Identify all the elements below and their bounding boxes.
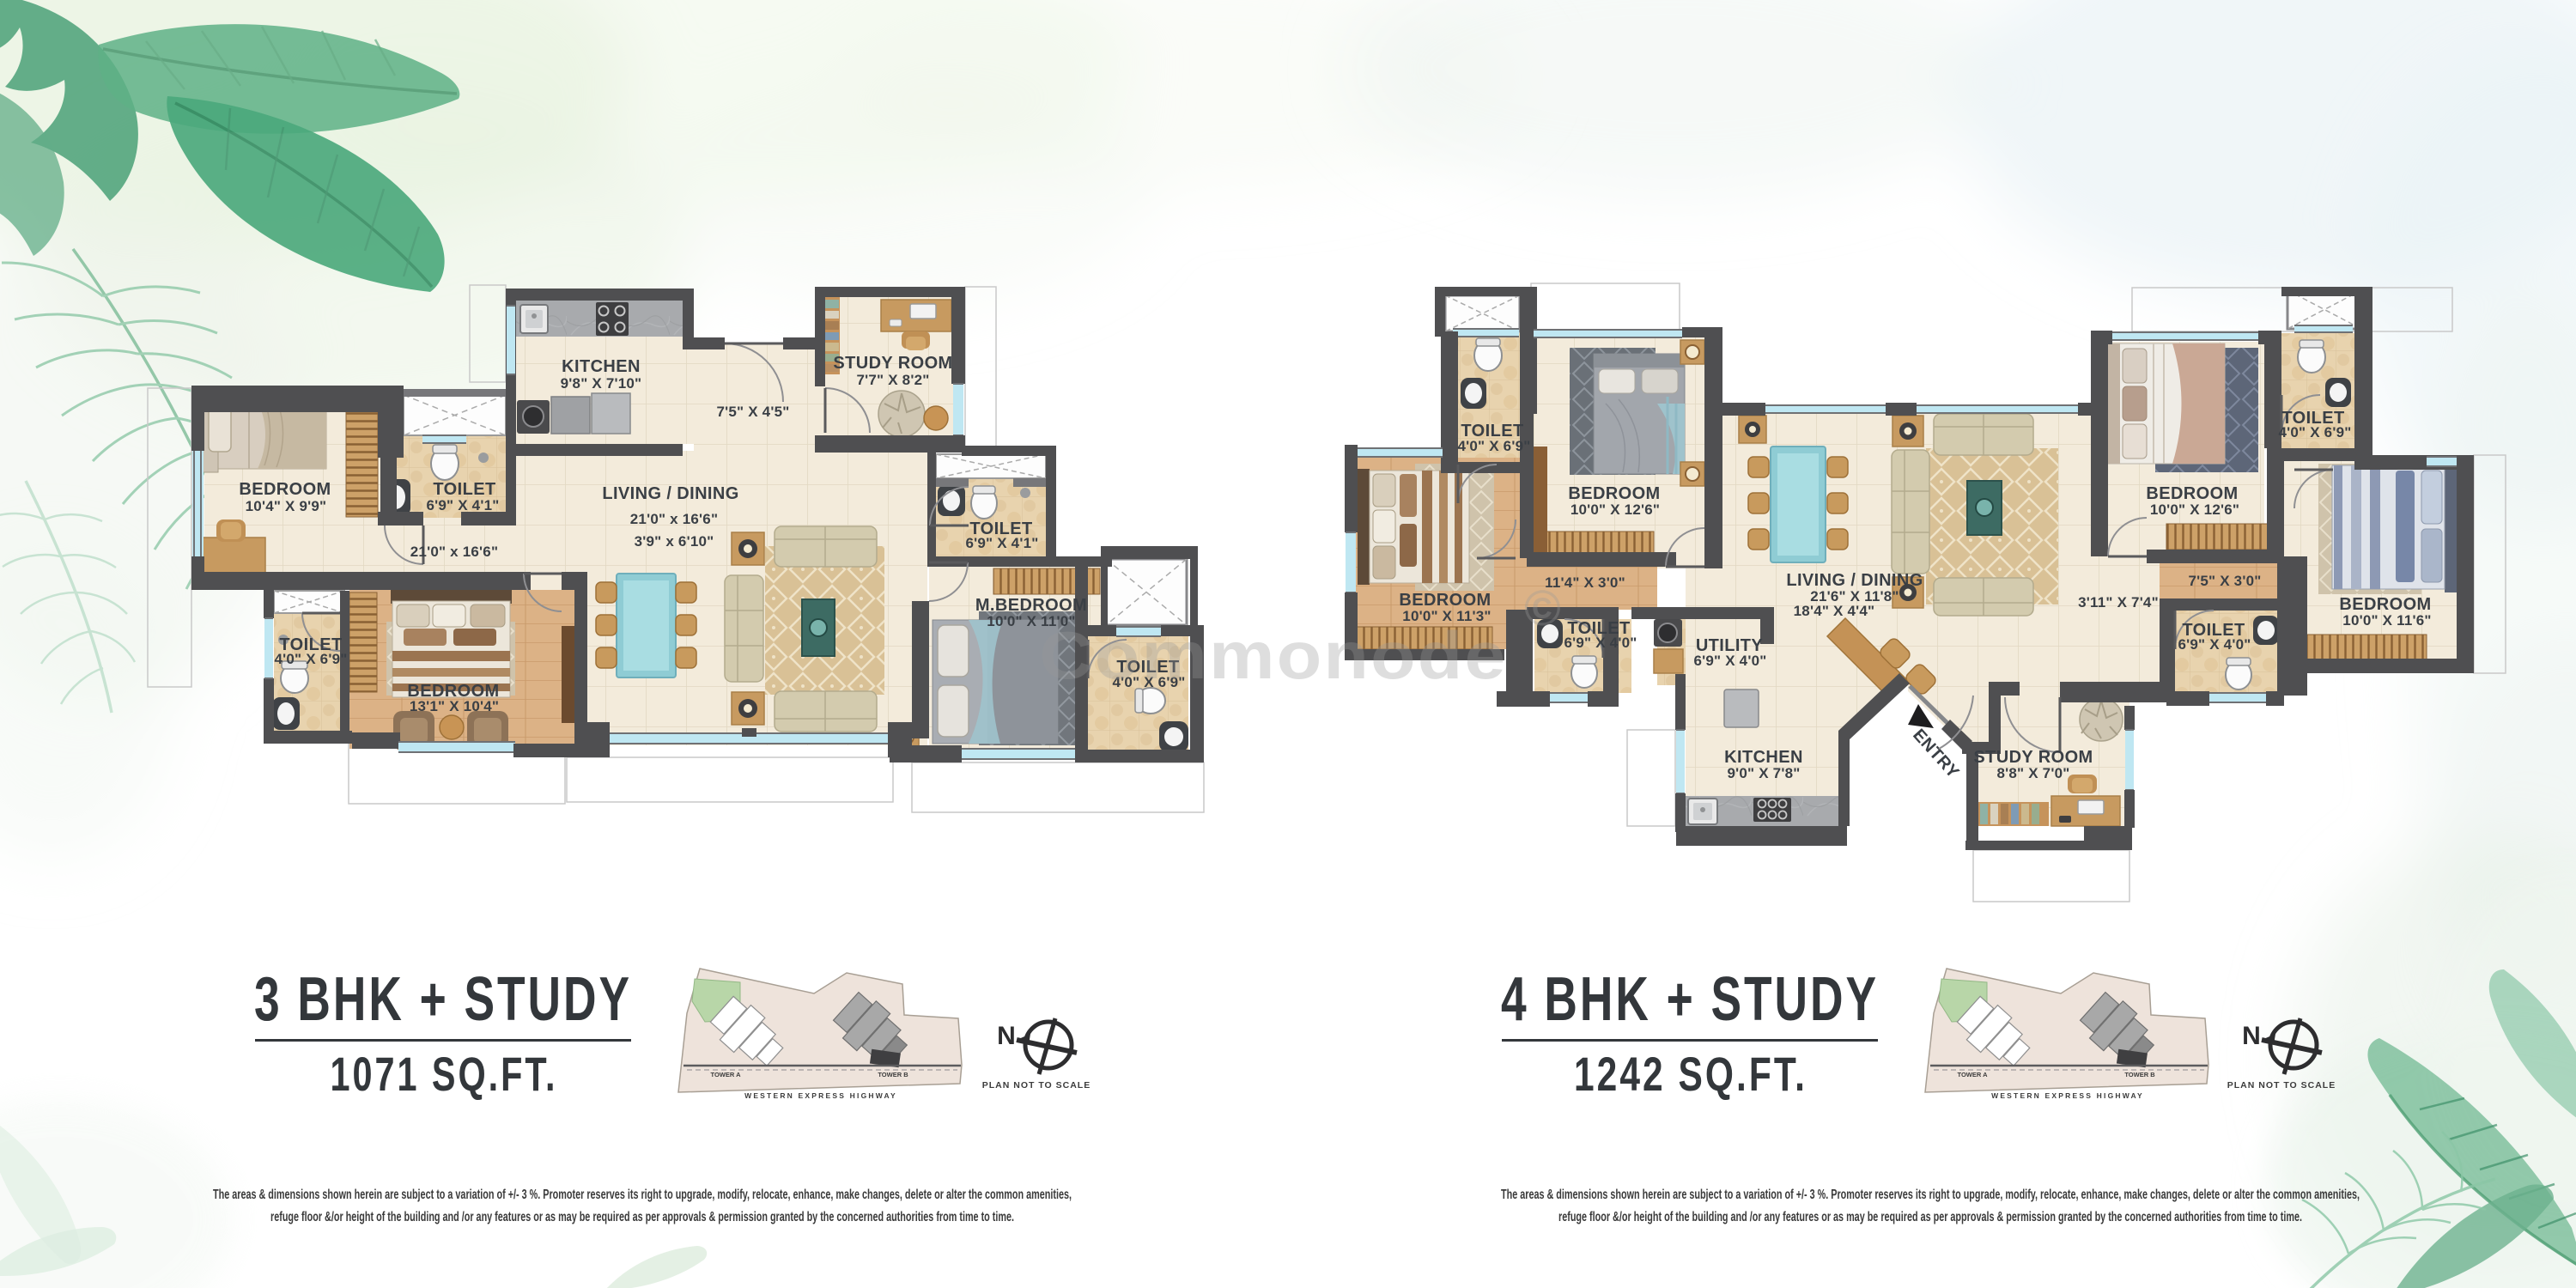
svg-text:10'0" X 12'6": 10'0" X 12'6" [1571, 501, 1660, 518]
svg-text:TOILET: TOILET [433, 480, 495, 499]
svg-text:STUDY ROOM: STUDY ROOM [833, 354, 952, 373]
svg-text:9'8" X 7'10": 9'8" X 7'10" [561, 375, 642, 392]
svg-text:STUDY ROOM: STUDY ROOM [1973, 748, 2093, 767]
svg-text:3'9" x 6'10": 3'9" x 6'10" [635, 533, 714, 550]
svg-text:BEDROOM: BEDROOM [2339, 595, 2431, 614]
svg-text:4 BHK + STUDY: 4 BHK + STUDY [1501, 965, 1879, 1034]
svg-text:6'9" X 4'0": 6'9" X 4'0" [2178, 636, 2251, 653]
svg-text:KITCHEN: KITCHEN [562, 357, 641, 376]
svg-text:6'9" X 4'0": 6'9" X 4'0" [1564, 635, 1637, 651]
svg-text:WESTERN EXPRESS HIGHWAY: WESTERN EXPRESS HIGHWAY [744, 1091, 897, 1100]
svg-text:PLAN NOT TO SCALE: PLAN NOT TO SCALE [982, 1080, 1091, 1091]
svg-text:N: N [997, 1022, 1016, 1050]
svg-text:21'0" x 16'6": 21'0" x 16'6" [630, 511, 718, 527]
svg-text:6'9" X 4'1": 6'9" X 4'1" [426, 497, 499, 513]
svg-text:KITCHEN: KITCHEN [1724, 748, 1803, 767]
svg-text:7'7" X 8'2": 7'7" X 8'2" [856, 372, 929, 388]
svg-text:BEDROOM: BEDROOM [1568, 484, 1660, 503]
svg-text:The areas & dimensions shown h: The areas & dimensions shown herein are … [1501, 1188, 2360, 1202]
svg-text:21'0" x 16'6": 21'0" x 16'6" [410, 544, 498, 560]
svg-text:LIVING / DINING: LIVING / DINING [1786, 571, 1923, 590]
svg-text:3'11" X 7'4": 3'11" X 7'4" [2078, 594, 2159, 611]
svg-text:3 BHK + STUDY: 3 BHK + STUDY [254, 965, 632, 1034]
svg-text:10'4" X 9'9": 10'4" X 9'9" [246, 498, 327, 514]
svg-text:4'0" X 6'9": 4'0" X 6'9" [1457, 438, 1530, 454]
svg-text:6'9" X 4'0": 6'9" X 4'0" [1693, 653, 1766, 669]
svg-text:6'9" X 4'1": 6'9" X 4'1" [965, 535, 1038, 551]
svg-text:LIVING / DINING: LIVING / DINING [602, 484, 738, 503]
svg-text:10'0" X 12'6": 10'0" X 12'6" [2150, 501, 2239, 518]
svg-text:4'0" X 6'9": 4'0" X 6'9" [2278, 424, 2351, 440]
svg-text:1071 SQ.FT.: 1071 SQ.FT. [331, 1047, 558, 1101]
svg-text:TOWER B: TOWER B [878, 1071, 908, 1078]
svg-text:13'1" X 10'4": 13'1" X 10'4" [410, 698, 499, 714]
svg-text:7'5" X 3'0": 7'5" X 3'0" [2188, 573, 2261, 589]
svg-text:M.BEDROOM: M.BEDROOM [975, 596, 1087, 615]
svg-text:refuge floor &/or height of th: refuge floor &/or height of the building… [1558, 1210, 2302, 1224]
svg-text:BEDROOM: BEDROOM [2146, 484, 2238, 503]
svg-text:8'8" X 7'0": 8'8" X 7'0" [1996, 765, 2069, 781]
svg-text:9'0" X 7'8": 9'0" X 7'8" [1727, 765, 1800, 781]
svg-text:BEDROOM: BEDROOM [1399, 591, 1491, 610]
svg-text:refuge floor &/or height of th: refuge floor &/or height of the building… [270, 1210, 1014, 1224]
svg-text:BEDROOM: BEDROOM [239, 480, 331, 499]
svg-text:The areas & dimensions shown h: The areas & dimensions shown herein are … [213, 1188, 1072, 1202]
svg-text:1242 SQ.FT.: 1242 SQ.FT. [1574, 1047, 1807, 1101]
svg-text:7'5" X 4'5": 7'5" X 4'5" [716, 404, 789, 420]
svg-text:18'4" X 4'4": 18'4" X 4'4" [1794, 603, 1875, 619]
svg-text:Commonode: Commonode [1040, 617, 1508, 693]
svg-text:©: © [1524, 580, 1561, 636]
svg-text:10'0" X 11'6": 10'0" X 11'6" [2342, 612, 2431, 629]
svg-text:4'0" X 6'9": 4'0" X 6'9" [274, 651, 347, 667]
svg-text:TOWER A: TOWER A [711, 1071, 742, 1078]
